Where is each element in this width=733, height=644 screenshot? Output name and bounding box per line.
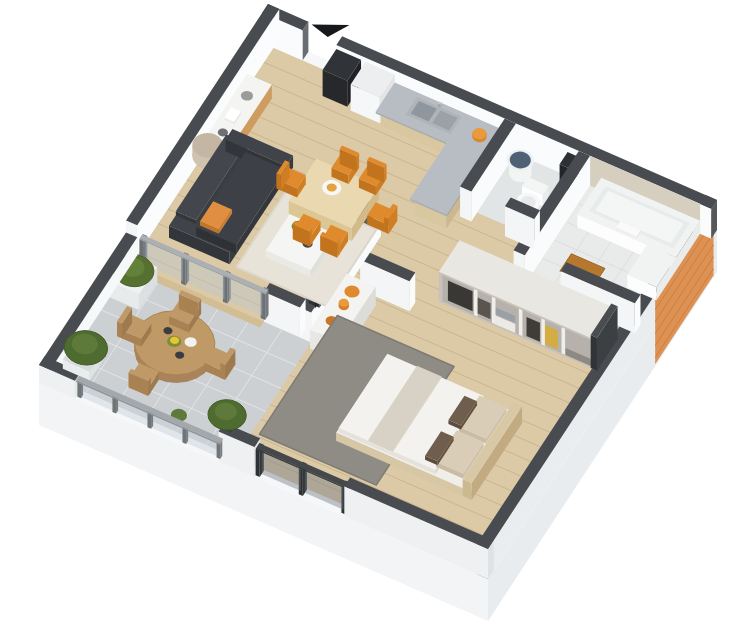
wardrobe-divider: [562, 327, 566, 355]
wardrobe-divider: [519, 309, 523, 337]
dresser-decor-orange: [339, 299, 349, 311]
floorplan-3d-render: [0, 0, 733, 644]
floorplan-canvas: [0, 0, 733, 644]
wardrobe-divider: [492, 297, 496, 325]
kitchen-kettle-orange: [472, 128, 486, 142]
wardrobe-divider: [541, 318, 545, 346]
wardrobe-divider: [474, 289, 478, 317]
entrance-arrow-icon: [312, 25, 350, 37]
